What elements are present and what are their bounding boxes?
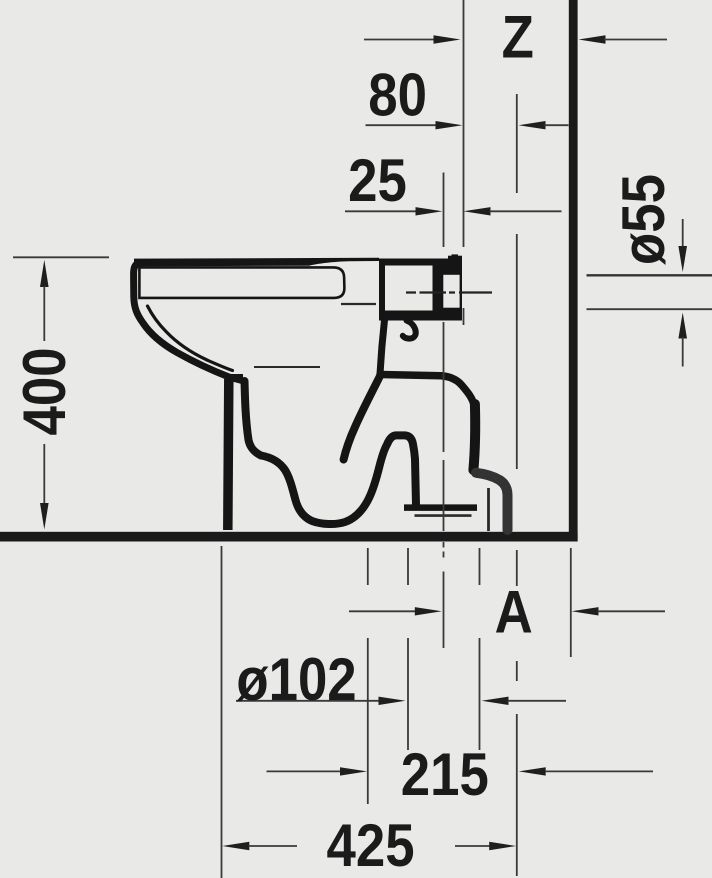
svg-text:80: 80	[368, 61, 427, 128]
svg-text:Z: Z	[502, 4, 534, 71]
svg-text:ø55: ø55	[610, 174, 677, 265]
svg-text:ø102: ø102	[236, 646, 356, 713]
svg-text:425: 425	[327, 812, 415, 878]
svg-text:25: 25	[348, 147, 407, 214]
svg-text:A: A	[495, 578, 533, 645]
svg-text:215: 215	[401, 741, 489, 808]
svg-text:400: 400	[11, 347, 78, 435]
